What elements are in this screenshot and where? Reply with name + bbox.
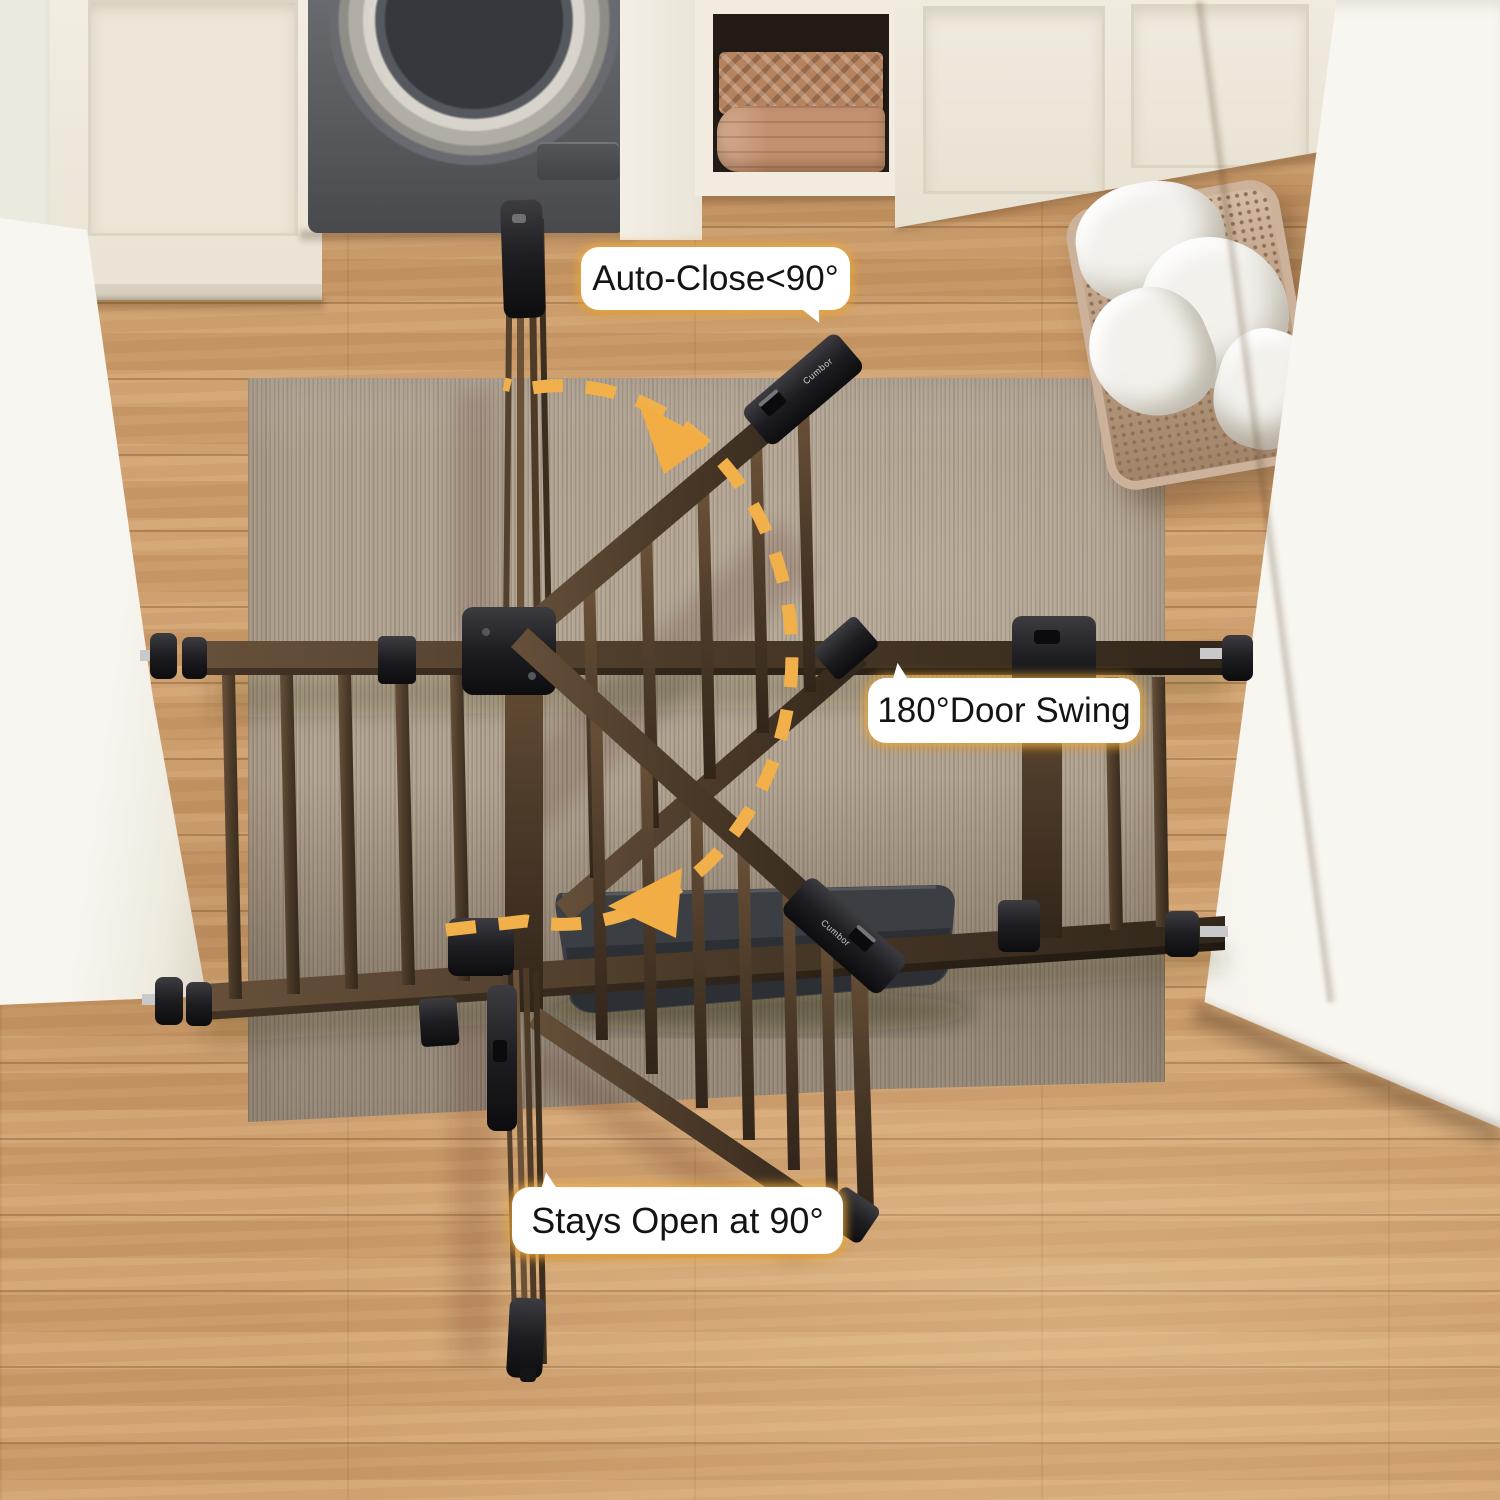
gate-bar — [222, 675, 242, 999]
hinge-bolt — [528, 672, 536, 680]
annotation-stays-open-text: Stays Open at 90° — [531, 1200, 824, 1242]
mount-knob — [1165, 911, 1199, 957]
door-foot — [520, 1368, 536, 1382]
annotation-door-swing: 180°Door Swing — [870, 680, 1138, 741]
annotation-auto-close: Auto-Close<90° — [583, 249, 848, 308]
baby-gate-illustration — [0, 0, 1500, 1500]
strip-shadow — [455, 392, 497, 642]
gate-bar — [338, 675, 358, 989]
gate-bar — [395, 675, 415, 985]
latch-slider — [512, 214, 526, 223]
gate-bar — [1152, 677, 1169, 927]
annotation-stays-open: Stays Open at 90° — [514, 1189, 841, 1252]
mount-knob — [150, 633, 177, 679]
mount-knob — [182, 637, 207, 679]
product-scene: Cumbor Cumbor Auto-Close<90° 180°Door Sw… — [0, 0, 1500, 1500]
door-open-90 — [487, 968, 547, 1382]
latch-post — [998, 616, 1096, 952]
latch-button — [1034, 630, 1060, 644]
annotation-auto-close-text: Auto-Close<90° — [592, 259, 839, 299]
spindle-rod — [1200, 926, 1228, 937]
rail-clamp — [418, 997, 459, 1048]
annotation-door-swing-text: 180°Door Swing — [877, 691, 1130, 731]
gate-bar — [280, 675, 300, 994]
door-open-180 — [500, 199, 552, 640]
mount-knob — [155, 977, 183, 1025]
arrowhead-up-left-icon — [638, 402, 710, 474]
hinge-bolt — [482, 628, 490, 636]
mount-knob — [186, 982, 212, 1026]
mount-knob — [1222, 635, 1253, 681]
door-handle-end-cap — [506, 1297, 546, 1379]
latch-post-foot — [998, 900, 1040, 952]
rail-clamp — [378, 636, 416, 684]
hinge-detail — [493, 1040, 507, 1062]
